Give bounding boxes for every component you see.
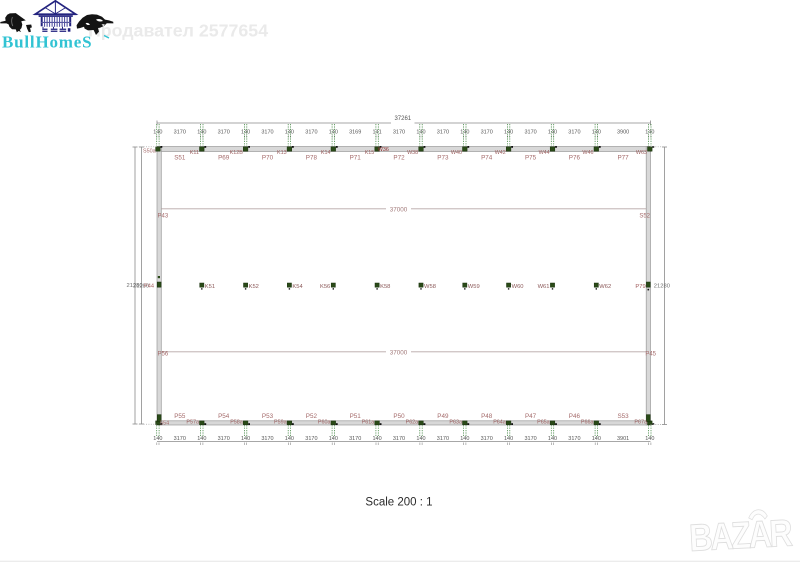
svg-text:3170: 3170 [349, 436, 361, 442]
svg-text:P79: P79 [635, 284, 645, 290]
svg-text:S54: S54 [160, 420, 170, 426]
svg-text:3900: 3900 [617, 129, 629, 135]
svg-text:3170: 3170 [305, 436, 317, 442]
svg-text:140: 140 [416, 436, 425, 442]
svg-text:3169: 3169 [349, 129, 361, 135]
svg-text:K12B: K12B [230, 150, 244, 156]
svg-text:21280: 21280 [654, 284, 670, 290]
svg-text:P67a: P67a [634, 420, 647, 426]
svg-text:3170: 3170 [437, 129, 449, 135]
svg-text:140: 140 [241, 129, 250, 135]
svg-text:140: 140 [241, 436, 250, 442]
svg-text:3170: 3170 [174, 129, 186, 135]
svg-text:140: 140 [592, 129, 601, 135]
svg-text:K54: K54 [292, 284, 303, 290]
svg-text:P64a: P64a [493, 420, 506, 426]
svg-text:P62a: P62a [406, 420, 419, 426]
svg-text:W61: W61 [538, 284, 550, 290]
svg-text:K58: K58 [380, 284, 390, 290]
svg-text:P50: P50 [393, 413, 405, 420]
svg-text:140: 140 [645, 129, 654, 135]
svg-text:140: 140 [460, 129, 469, 135]
svg-text:3170: 3170 [568, 436, 580, 442]
svg-text:K14: K14 [321, 150, 331, 156]
svg-text:W44: W44 [539, 150, 550, 156]
svg-text:P59a: P59a [274, 420, 287, 426]
svg-text:BAZAR: BAZAR [688, 512, 793, 559]
svg-text:W58: W58 [424, 284, 436, 290]
svg-text:S51: S51 [174, 155, 186, 162]
svg-text:P58a: P58a [230, 420, 243, 426]
svg-text:W62: W62 [599, 284, 611, 290]
svg-text:P75: P75 [525, 155, 537, 162]
svg-text:P65a: P65a [537, 420, 550, 426]
svg-text:140: 140 [153, 129, 162, 135]
svg-text:141: 141 [373, 129, 382, 135]
svg-text:3170: 3170 [393, 129, 405, 135]
svg-text:P69: P69 [218, 155, 230, 162]
svg-text:P44: P44 [144, 283, 154, 289]
svg-text:Scale 200 : 1: Scale 200 : 1 [365, 497, 432, 509]
svg-text:3170: 3170 [524, 436, 536, 442]
svg-text:Продавател 2577654: Продавател 2577654 [88, 21, 268, 41]
svg-text:K11: K11 [190, 150, 199, 156]
svg-text:P63a: P63a [449, 420, 462, 426]
svg-text:140: 140 [373, 436, 382, 442]
svg-text:37000: 37000 [390, 207, 408, 214]
svg-text:W36: W36 [378, 147, 389, 153]
svg-text:3170: 3170 [481, 436, 493, 442]
svg-text:W40: W40 [451, 150, 462, 156]
svg-text:W63: W63 [636, 150, 647, 156]
svg-text:W46: W46 [582, 150, 593, 156]
svg-text:140: 140 [504, 129, 513, 135]
svg-text:P71: P71 [350, 155, 362, 162]
svg-text:140: 140 [285, 436, 294, 442]
svg-text:140: 140 [285, 129, 294, 135]
svg-text:140: 140 [197, 129, 206, 135]
svg-text:P46: P46 [569, 413, 581, 420]
svg-text:P51: P51 [350, 413, 362, 420]
svg-text:P55: P55 [174, 413, 186, 420]
svg-text:140: 140 [548, 129, 557, 135]
svg-text:W38: W38 [407, 150, 418, 156]
svg-text:P57a: P57a [186, 420, 199, 426]
svg-text:S52: S52 [639, 214, 650, 220]
svg-text:W60: W60 [512, 284, 524, 290]
svg-text:140: 140 [153, 436, 162, 442]
svg-text:K52: K52 [249, 284, 259, 290]
svg-text:140: 140 [548, 436, 557, 442]
svg-text:P76: P76 [569, 155, 581, 162]
svg-text:140: 140 [197, 436, 206, 442]
svg-text:P72: P72 [393, 155, 405, 162]
svg-text:3170: 3170 [393, 436, 405, 442]
svg-text:P61a: P61a [362, 420, 375, 426]
svg-text:P47: P47 [525, 413, 537, 420]
svg-text:S53: S53 [617, 413, 629, 420]
svg-text:K56: K56 [320, 284, 330, 290]
svg-text:P43: P43 [158, 214, 169, 220]
svg-text:P73: P73 [437, 155, 449, 162]
svg-text:W42: W42 [495, 150, 506, 156]
svg-text:P77: P77 [617, 155, 629, 162]
svg-text:140: 140 [645, 436, 654, 442]
svg-text:P52: P52 [306, 413, 318, 420]
svg-text:P74: P74 [481, 155, 493, 162]
svg-text:140: 140 [460, 436, 469, 442]
svg-text:P54: P54 [218, 413, 230, 420]
svg-text:K13: K13 [277, 150, 287, 156]
svg-text:K51: K51 [205, 284, 215, 290]
svg-text:3170: 3170 [481, 129, 493, 135]
svg-text:W59: W59 [468, 284, 480, 290]
svg-text:P56: P56 [158, 351, 169, 357]
svg-text:P66a: P66a [581, 420, 594, 426]
svg-text:3170: 3170 [174, 436, 186, 442]
svg-text:P49: P49 [437, 413, 449, 420]
svg-text:140: 140 [416, 129, 425, 135]
svg-text:P70: P70 [262, 155, 274, 162]
svg-text:3170: 3170 [524, 129, 536, 135]
svg-text:3170: 3170 [218, 436, 230, 442]
svg-text:3170: 3170 [568, 129, 580, 135]
svg-text:P48: P48 [481, 413, 493, 420]
svg-text:3170: 3170 [218, 129, 230, 135]
svg-text:37000: 37000 [390, 350, 408, 357]
svg-text:P78: P78 [306, 155, 318, 162]
svg-text:P45: P45 [645, 351, 656, 357]
svg-text:3170: 3170 [305, 129, 317, 135]
svg-text:P53: P53 [262, 413, 274, 420]
svg-text:140: 140 [329, 129, 338, 135]
svg-text:3901: 3901 [617, 436, 629, 442]
svg-text:3170: 3170 [261, 436, 273, 442]
svg-text:3170: 3170 [437, 436, 449, 442]
svg-text:140: 140 [504, 436, 513, 442]
svg-text:3170: 3170 [261, 129, 273, 135]
svg-text:S50a: S50a [143, 149, 156, 155]
svg-text:140: 140 [329, 436, 338, 442]
svg-text:37261: 37261 [394, 116, 411, 122]
svg-text:K15: K15 [365, 150, 375, 156]
svg-text:BullHomeS: BullHomeS [2, 33, 92, 52]
svg-text:140: 140 [592, 436, 601, 442]
svg-text:P60a: P60a [318, 420, 331, 426]
